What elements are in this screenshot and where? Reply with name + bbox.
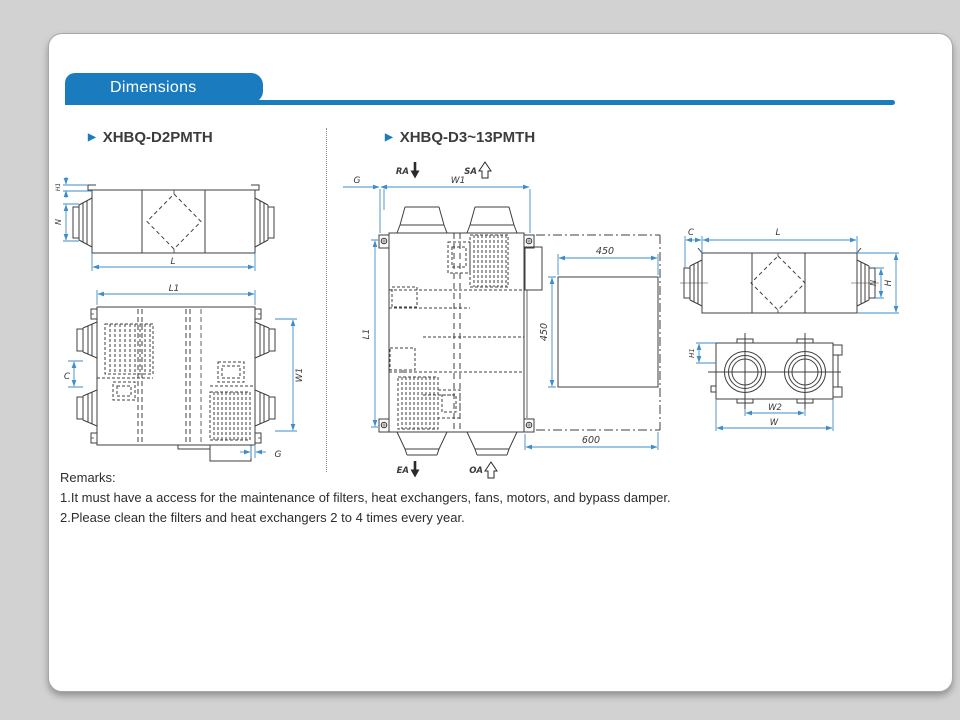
dim-label-w: W — [770, 418, 779, 428]
dim-label-h1: H1 — [55, 183, 62, 191]
dim-label-l: L — [775, 228, 780, 238]
dim-label-l1: L1 — [362, 329, 372, 340]
ra-down-arrow-icon — [411, 162, 420, 179]
remarks-heading: Remarks: — [60, 468, 671, 488]
drawing-d2-side-view: H1 N L — [55, 172, 305, 294]
dim-label-h: H — [884, 279, 894, 286]
dim-label-w2: W2 — [768, 403, 782, 413]
drawing-d3-top-view: RA SA EA OA G W1 L1 450 450 600 — [333, 148, 668, 483]
dim-label-h1: H1 — [688, 348, 696, 358]
dim-label-c: C — [64, 372, 71, 382]
dim-label-600: 600 — [582, 435, 600, 446]
dim-label-g: G — [275, 450, 282, 460]
model-name-right: XHBQ-D3~13PMTH — [400, 129, 535, 146]
section-title-right: ▶XHBQ-D3~13PMTH — [385, 129, 535, 146]
dim-label-c: C — [688, 228, 694, 238]
dim-label-l: L — [170, 257, 175, 267]
dim-label-w1: W1 — [451, 176, 466, 186]
airflow-label-ra: RA — [396, 167, 409, 177]
dim-label-n: N — [869, 280, 878, 286]
dim-label-g: G — [354, 176, 361, 186]
header-tab: Dimensions — [65, 73, 263, 103]
dim-label-l1: L1 — [169, 284, 180, 294]
drawing-d2-top-view: L1 W1 C G — [58, 282, 313, 478]
remarks: Remarks: 1.It must have a access for the… — [60, 468, 671, 528]
sa-up-arrow-icon — [479, 162, 491, 178]
airflow-label-sa: SA — [464, 167, 477, 177]
dim-label-450-height: 450 — [539, 323, 550, 341]
triangle-bullet-icon: ▶ — [385, 132, 393, 143]
dim-label-450-width: 450 — [596, 246, 614, 257]
section-title-left: ▶XHBQ-D2PMTH — [88, 129, 213, 146]
drawing-d3-side-view: C L N H — [678, 222, 913, 318]
model-name-left: XHBQ-D2PMTH — [103, 129, 213, 146]
triangle-bullet-icon: ▶ — [88, 132, 96, 143]
dim-label-w1: W1 — [295, 368, 305, 383]
drawing-d3-end-view: H1 W2 W — [688, 330, 913, 442]
remarks-line-1: 1.It must have a access for the maintena… — [60, 488, 671, 508]
dim-label-n: N — [54, 219, 63, 225]
remarks-line-2: 2.Please clean the filters and heat exch… — [60, 508, 671, 528]
slide: Dimensions ▶XHBQ-D2PMTH ▶XHBQ-D3~13PMTH — [0, 0, 960, 720]
section-divider — [326, 128, 327, 472]
page-title: Dimensions — [110, 79, 197, 96]
